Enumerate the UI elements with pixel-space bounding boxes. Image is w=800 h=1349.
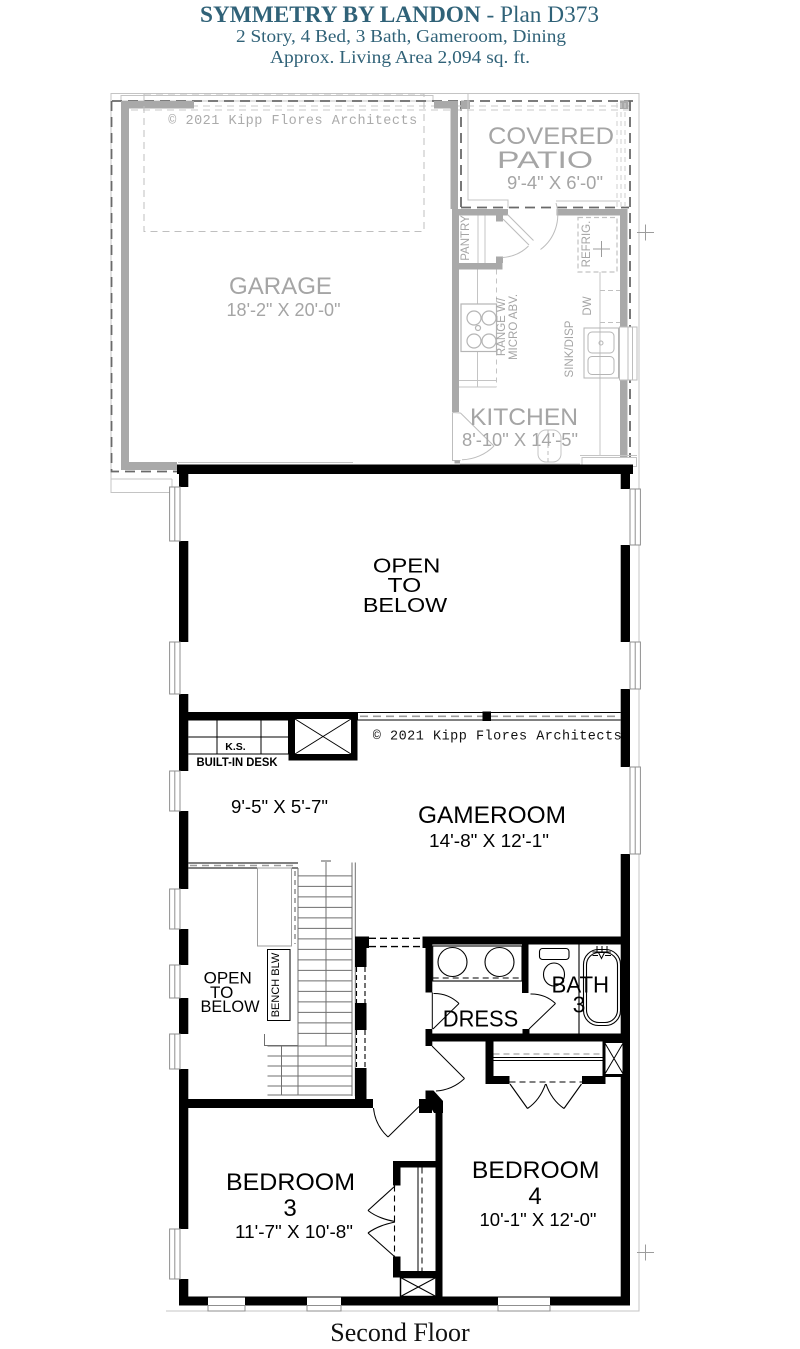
svg-text:BELOW: BELOW [201, 997, 260, 1016]
svg-text:BENCH BLW: BENCH BLW [270, 952, 282, 1017]
svg-text:14'-8" X 12'-1": 14'-8" X 12'-1" [429, 831, 549, 851]
svg-text:3: 3 [283, 1195, 296, 1222]
svg-text:Second Floor: Second Floor [330, 1318, 470, 1347]
svg-text:BEDROOM: BEDROOM [472, 1157, 600, 1184]
svg-text:K.S.: K.S. [225, 741, 246, 753]
svg-text:2 Story, 4 Bed, 3 Bath, Gamero: 2 Story, 4 Bed, 3 Bath, Gameroom, Dining [236, 26, 566, 46]
svg-text:18'-2" X 20'-0": 18'-2" X 20'-0" [227, 300, 341, 320]
svg-text:REFRIG.: REFRIG. [581, 221, 593, 268]
svg-text:10'-1" X 12'-0": 10'-1" X 12'-0" [480, 1210, 597, 1230]
svg-text:9'-4" X 6'-0": 9'-4" X 6'-0" [507, 173, 603, 193]
svg-text:9'-5" X 5'-7": 9'-5" X 5'-7" [231, 797, 328, 817]
svg-text:GAMEROOM: GAMEROOM [418, 802, 566, 829]
svg-text:3: 3 [573, 992, 586, 1018]
svg-text:DRESS: DRESS [443, 1006, 519, 1032]
svg-text:MICRO ABV.: MICRO ABV. [508, 294, 520, 360]
svg-text:BUILT-IN DESK: BUILT-IN DESK [197, 755, 278, 769]
svg-text:SYMMETRY BY LANDON - Plan D373: SYMMETRY BY LANDON - Plan D373 [200, 2, 599, 28]
svg-text:PATIO: PATIO [497, 147, 593, 174]
svg-text:TO: TO [388, 575, 422, 597]
svg-text:BEDROOM: BEDROOM [226, 1169, 355, 1196]
svg-text:PANTRY: PANTRY [460, 215, 472, 261]
svg-text:COVERED: COVERED [488, 123, 614, 150]
svg-text:DW: DW [582, 296, 594, 315]
svg-text:© 2021 Kipp Flores Architects: © 2021 Kipp Flores Architects [168, 114, 417, 129]
svg-text:11'-7" X 10'-8": 11'-7" X 10'-8" [235, 1222, 353, 1242]
svg-text:SINK/DISP: SINK/DISP [564, 320, 576, 377]
svg-text:© 2021 Kipp Flores Architects: © 2021 Kipp Flores Architects [373, 730, 622, 745]
svg-text:4: 4 [528, 1183, 541, 1210]
svg-text:Approx. Living Area 2,094 sq.: Approx. Living Area 2,094 sq. ft. [270, 47, 530, 67]
svg-text:BELOW: BELOW [363, 595, 447, 617]
svg-text:KITCHEN: KITCHEN [470, 404, 578, 431]
svg-text:RANGE W/: RANGE W/ [496, 297, 508, 356]
svg-text:GARAGE: GARAGE [229, 273, 332, 300]
